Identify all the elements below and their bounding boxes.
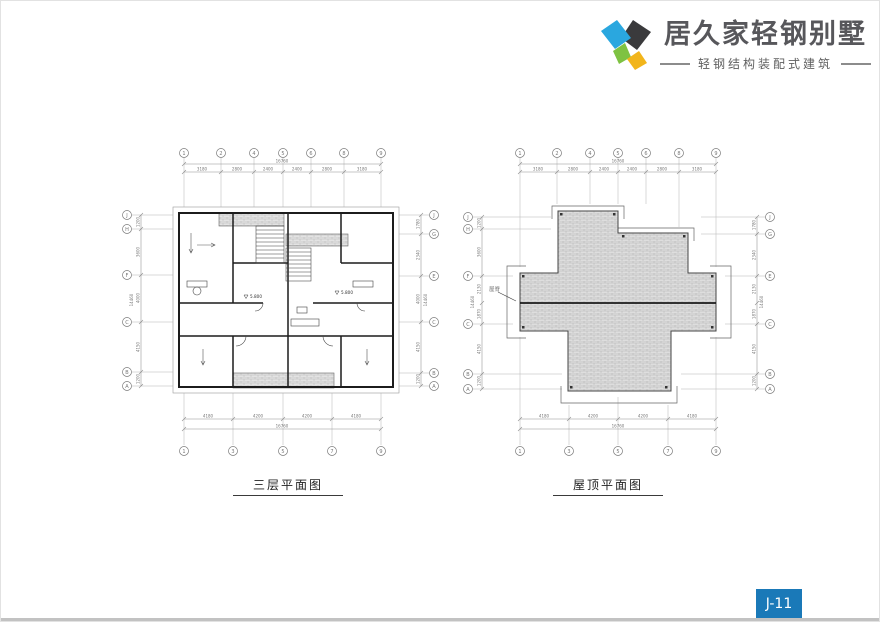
svg-text:2800: 2800 — [322, 167, 333, 172]
svg-text:9: 9 — [714, 151, 717, 157]
svg-text:5: 5 — [281, 449, 284, 455]
svg-text:1200: 1200 — [136, 216, 141, 227]
roof-hatch-surface — [520, 211, 716, 391]
svg-text:1870: 1870 — [477, 308, 482, 319]
brand-title: 居久家轻钢别墅 — [664, 18, 867, 52]
svg-text:B: B — [432, 371, 436, 377]
svg-text:3: 3 — [567, 449, 570, 455]
balcony-hatch — [233, 373, 334, 388]
roof-body: 屋脊 — [489, 206, 731, 403]
svg-text:14460: 14460 — [129, 293, 134, 306]
svg-text:4180: 4180 — [351, 414, 362, 419]
svg-text:6: 6 — [309, 151, 312, 157]
svg-text:1200: 1200 — [136, 373, 141, 384]
floor-plan-3-drawing: 1 2 4 5 6 8 9 1 3 5 7 9 J H F C B A J G … — [109, 141, 469, 471]
svg-text:H: H — [125, 227, 129, 233]
svg-text:2340: 2340 — [752, 249, 757, 260]
svg-text:A: A — [432, 384, 436, 390]
brand-text-block: 居久家轻钢别墅 轻钢结构装配式建筑 — [660, 18, 871, 73]
svg-text:3180: 3180 — [357, 167, 368, 172]
svg-text:F: F — [126, 273, 129, 279]
svg-text:4150: 4150 — [477, 343, 482, 354]
svg-text:4200: 4200 — [588, 414, 599, 419]
svg-text:2400: 2400 — [263, 167, 274, 172]
svg-text:2130: 2130 — [477, 283, 482, 294]
svg-text:2: 2 — [555, 151, 558, 157]
svg-text:16760: 16760 — [612, 424, 625, 429]
svg-text:G: G — [768, 232, 772, 238]
svg-text:1200: 1200 — [752, 375, 757, 386]
svg-text:F: F — [467, 274, 470, 280]
subtitle-left-dash — [660, 63, 690, 65]
roof-plan-drawing: 1 2 4 5 6 8 9 1 3 5 7 9 J H F C B A J G … — [449, 141, 789, 471]
roof-hatch-strip-upper — [219, 213, 284, 226]
svg-text:3600: 3600 — [477, 246, 482, 257]
svg-text:4000: 4000 — [416, 293, 421, 304]
svg-text:4200: 4200 — [302, 414, 313, 419]
svg-text:3: 3 — [231, 449, 234, 455]
svg-text:1: 1 — [182, 449, 185, 455]
svg-text:1200: 1200 — [477, 217, 482, 228]
svg-text:3180: 3180 — [197, 167, 208, 172]
grid-bubbles — [123, 149, 439, 456]
svg-text:14460: 14460 — [470, 295, 475, 308]
roof-hatch-strip-lower — [286, 234, 348, 246]
svg-text:B: B — [768, 372, 772, 378]
svg-text:J: J — [768, 215, 770, 221]
brand-logo-icon — [600, 17, 652, 73]
svg-text:4000: 4000 — [136, 292, 141, 303]
svg-text:3180: 3180 — [533, 167, 544, 172]
svg-text:G: G — [432, 232, 436, 238]
svg-text:16760: 16760 — [276, 424, 289, 429]
svg-text:J: J — [432, 213, 434, 219]
svg-text:C: C — [466, 322, 470, 328]
elevation-markers: 5.800 5.800 — [244, 290, 353, 299]
svg-text:E: E — [432, 274, 435, 280]
building-outline: 5.800 5.800 — [173, 207, 399, 393]
svg-text:B: B — [125, 370, 129, 376]
svg-text:5: 5 — [281, 151, 284, 157]
svg-text:5: 5 — [616, 151, 619, 157]
svg-text:3600: 3600 — [136, 246, 141, 257]
svg-text:1780: 1780 — [416, 218, 421, 229]
svg-text:5.800: 5.800 — [250, 294, 262, 299]
svg-text:16760: 16760 — [612, 159, 625, 164]
svg-text:4180: 4180 — [539, 414, 550, 419]
svg-text:1: 1 — [518, 449, 521, 455]
svg-text:1200: 1200 — [416, 373, 421, 384]
svg-text:4200: 4200 — [638, 414, 649, 419]
svg-text:J: J — [466, 215, 468, 221]
svg-text:B: B — [466, 372, 470, 378]
drawing-sheet: 居久家轻钢别墅 轻钢结构装配式建筑 — [0, 0, 880, 622]
svg-text:1780: 1780 — [752, 219, 757, 230]
svg-text:16760: 16760 — [276, 159, 289, 164]
svg-text:4180: 4180 — [687, 414, 698, 419]
brand-subtitle: 轻钢结构装配式建筑 — [698, 55, 833, 72]
svg-text:4150: 4150 — [416, 341, 421, 352]
svg-text:14460: 14460 — [423, 293, 428, 306]
svg-text:2400: 2400 — [292, 167, 303, 172]
svg-text:14460: 14460 — [759, 295, 764, 308]
svg-text:5.800: 5.800 — [341, 290, 353, 295]
svg-text:C: C — [432, 320, 436, 326]
svg-text:E: E — [768, 274, 771, 280]
svg-text:1870: 1870 — [752, 308, 757, 319]
svg-text:7: 7 — [666, 449, 669, 455]
svg-text:4200: 4200 — [253, 414, 264, 419]
svg-text:4: 4 — [252, 151, 255, 157]
subtitle-right-dash — [841, 63, 871, 65]
sheet-number-badge: J-11 — [756, 589, 802, 619]
floor-plan-3-title: 三层平面图 — [233, 476, 343, 496]
grid-lines — [132, 158, 429, 445]
svg-text:9: 9 — [714, 449, 717, 455]
brand-subtitle-row: 轻钢结构装配式建筑 — [660, 55, 871, 72]
svg-text:1: 1 — [518, 151, 521, 157]
svg-text:A: A — [125, 384, 129, 390]
roof-plan-title: 屋顶平面图 — [553, 476, 663, 496]
svg-text:3180: 3180 — [692, 167, 703, 172]
svg-text:9: 9 — [379, 449, 382, 455]
svg-text:2340: 2340 — [416, 249, 421, 260]
bottom-rule — [1, 618, 880, 621]
svg-text:2130: 2130 — [752, 283, 757, 294]
ridge-annotation: 屋脊 — [489, 285, 516, 301]
svg-text:2800: 2800 — [568, 167, 579, 172]
svg-text:屋脊: 屋脊 — [489, 285, 501, 293]
svg-text:H: H — [466, 227, 470, 233]
svg-text:4180: 4180 — [203, 414, 214, 419]
svg-text:J: J — [125, 213, 127, 219]
svg-text:9: 9 — [379, 151, 382, 157]
svg-text:1: 1 — [182, 151, 185, 157]
dimension-lines — [139, 162, 423, 431]
svg-text:8: 8 — [342, 151, 345, 157]
svg-text:1200: 1200 — [477, 375, 482, 386]
svg-text:2: 2 — [219, 151, 222, 157]
svg-text:2800: 2800 — [232, 167, 243, 172]
svg-text:8: 8 — [677, 151, 680, 157]
svg-text:4150: 4150 — [752, 343, 757, 354]
svg-text:2800: 2800 — [657, 167, 668, 172]
svg-text:7: 7 — [330, 449, 333, 455]
slope-arrows — [189, 233, 369, 365]
svg-text:2400: 2400 — [627, 167, 638, 172]
svg-text:6: 6 — [644, 151, 647, 157]
svg-text:C: C — [125, 320, 129, 326]
svg-text:4: 4 — [588, 151, 591, 157]
svg-text:4150: 4150 — [136, 341, 141, 352]
svg-text:C: C — [768, 322, 772, 328]
svg-text:A: A — [466, 387, 470, 393]
brand-header: 居久家轻钢别墅 轻钢结构装配式建筑 — [600, 17, 871, 73]
svg-text:5: 5 — [616, 449, 619, 455]
svg-text:2400: 2400 — [599, 167, 610, 172]
svg-text:A: A — [768, 387, 772, 393]
